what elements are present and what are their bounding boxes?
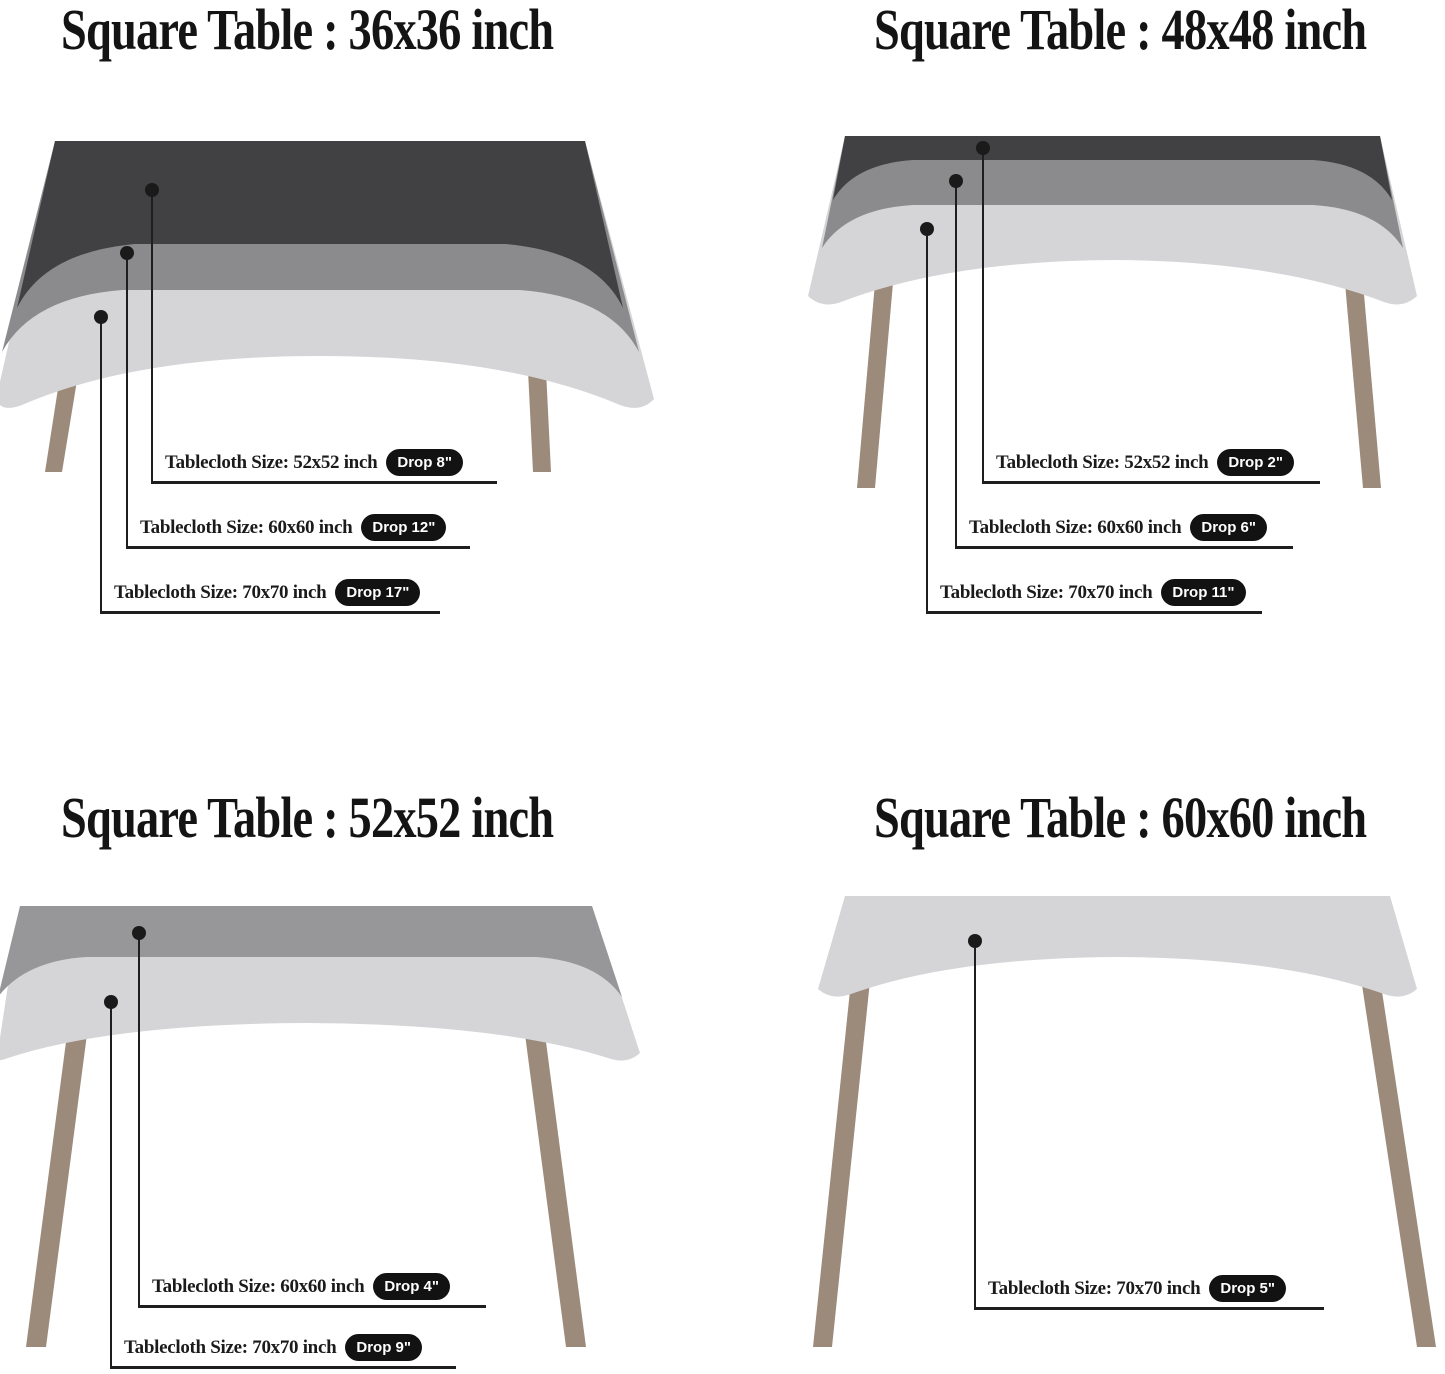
drop-badge: Drop 9"	[345, 1334, 422, 1361]
tablecloth-size-label: Tablecloth Size: 70x70 inch	[988, 1278, 1200, 1300]
tablecloth-size-label: Tablecloth Size: 60x60 inch	[152, 1276, 364, 1298]
quadrant-52x52: Square Table : 52x52 inch Tablecloth Siz…	[0, 687, 722, 1374]
drop-badge: Drop 17"	[335, 579, 420, 606]
callout-line-70x70	[100, 317, 102, 614]
quadrant-36x36: Square Table : 36x36 inch Tablecloth Siz…	[0, 0, 722, 687]
tablecloth-size-label: Tablecloth Size: 70x70 inch	[114, 582, 326, 604]
drop-badge: Drop 2"	[1217, 449, 1294, 476]
callout-line-60x60	[126, 253, 128, 549]
callout-label-row: Tablecloth Size: 60x60 inch Drop 6"	[955, 509, 1293, 549]
quadrant-48x48: Square Table : 48x48 inch Tablecloth Siz…	[723, 0, 1445, 687]
tablecloth-70x70-layer	[818, 896, 1417, 997]
callout-line-52x52	[982, 148, 984, 484]
drop-badge: Drop 12"	[361, 514, 446, 541]
callout-line-70x70	[110, 1002, 112, 1369]
tablecloth-size-label: Tablecloth Size: 60x60 inch	[969, 517, 1181, 539]
callout-line-70x70	[974, 941, 976, 1310]
callout-line-60x60	[955, 181, 957, 549]
callout-label-row: Tablecloth Size: 60x60 inch Drop 4"	[138, 1268, 486, 1308]
callout-line-60x60	[138, 933, 140, 1308]
callout-label-row: Tablecloth Size: 52x52 inch Drop 8"	[151, 444, 497, 484]
callout-label-row: Tablecloth Size: 52x52 inch Drop 2"	[982, 444, 1320, 484]
table-leg-right	[1357, 952, 1436, 1347]
quadrant-60x60: Square Table : 60x60 inch Tablecloth Siz…	[723, 687, 1445, 1374]
callout-label-row: Tablecloth Size: 70x70 inch Drop 11"	[926, 574, 1262, 614]
tablecloth-size-label: Tablecloth Size: 70x70 inch	[124, 1337, 336, 1359]
drop-badge: Drop 8"	[386, 449, 463, 476]
callout-label-row: Tablecloth Size: 70x70 inch Drop 9"	[110, 1329, 456, 1369]
drop-badge: Drop 5"	[1209, 1275, 1286, 1302]
tablecloth-size-label: Tablecloth Size: 52x52 inch	[996, 452, 1208, 474]
table-leg-left	[26, 1019, 89, 1347]
callout-line-52x52	[151, 190, 153, 484]
tablecloth-size-label: Tablecloth Size: 52x52 inch	[165, 452, 377, 474]
table-leg-left	[813, 952, 873, 1347]
callout-label-row: Tablecloth Size: 70x70 inch Drop 5"	[974, 1270, 1324, 1310]
tablecloth-size-label: Tablecloth Size: 60x60 inch	[140, 517, 352, 539]
callout-line-70x70	[926, 229, 928, 614]
drop-badge: Drop 11"	[1161, 579, 1245, 606]
callout-label-row: Tablecloth Size: 60x60 inch Drop 12"	[126, 509, 470, 549]
tablecloth-size-guide: Square Table : 36x36 inch Tablecloth Siz…	[0, 0, 1445, 1374]
drop-badge: Drop 4"	[373, 1273, 450, 1300]
table-leg-right	[523, 1019, 586, 1347]
drop-badge: Drop 6"	[1190, 514, 1267, 541]
callout-label-row: Tablecloth Size: 70x70 inch Drop 17"	[100, 574, 440, 614]
tablecloth-size-label: Tablecloth Size: 70x70 inch	[940, 582, 1152, 604]
